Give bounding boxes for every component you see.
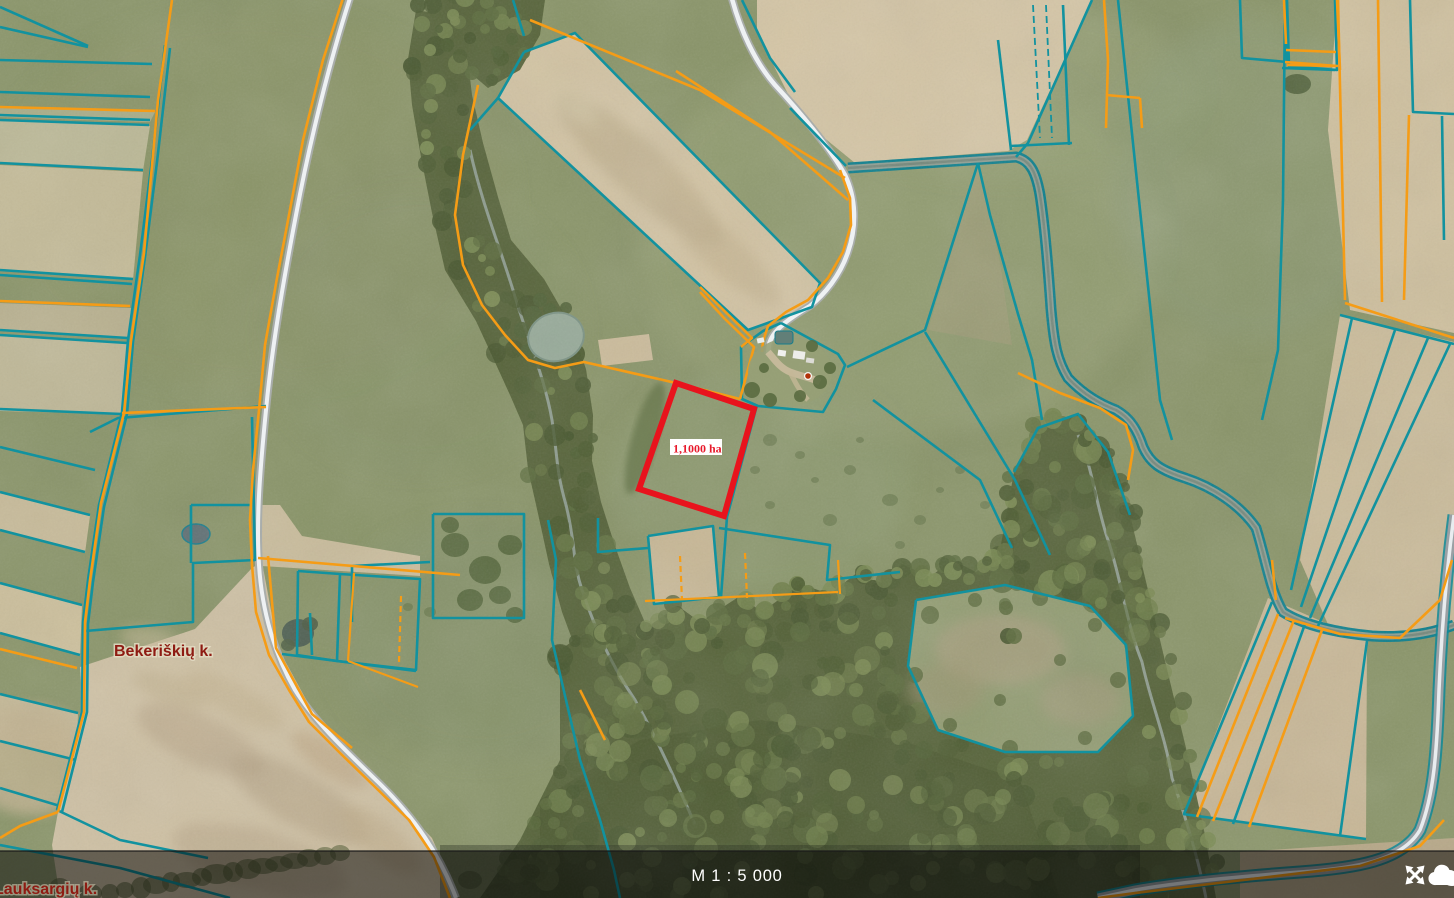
svg-text:Lauksargių k.: Lauksargių k.: [0, 881, 97, 898]
svg-text:M 1 : 5 000: M 1 : 5 000: [691, 867, 782, 885]
svg-text:Bekeriškių k.: Bekeriškių k.: [114, 643, 213, 660]
svg-text:1,1000 ha: 1,1000 ha: [673, 442, 722, 456]
